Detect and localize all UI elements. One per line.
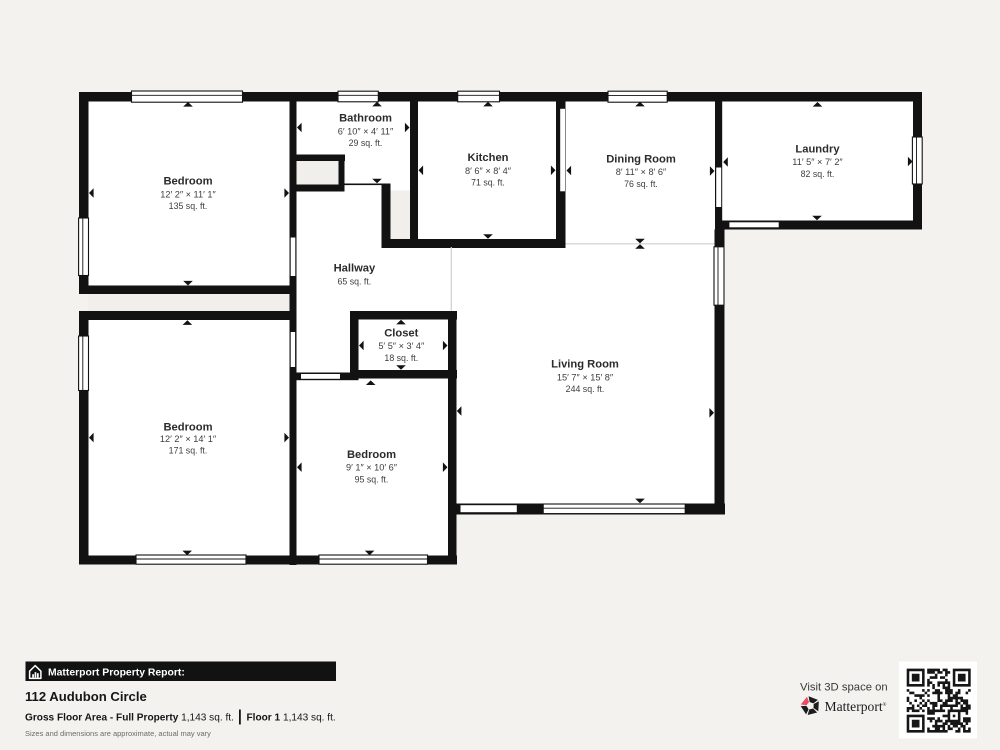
svg-text:11′ 5″ × 7′ 2″: 11′ 5″ × 7′ 2″ xyxy=(792,157,843,167)
svg-text:135 sq. ft.: 135 sq. ft. xyxy=(169,201,208,211)
svg-text:12′ 2″ × 14′ 1″: 12′ 2″ × 14′ 1″ xyxy=(160,434,217,444)
svg-text:Dining Room: Dining Room xyxy=(606,153,676,165)
svg-text:76 sq. ft.: 76 sq. ft. xyxy=(624,179,658,189)
svg-text:12′ 2″ × 11′ 1″: 12′ 2″ × 11′ 1″ xyxy=(160,189,216,199)
svg-text:Closet: Closet xyxy=(384,327,418,339)
svg-text:Bedroom: Bedroom xyxy=(347,449,396,461)
svg-text:Matterport Property Report:: Matterport Property Report: xyxy=(48,668,185,679)
svg-text:171 sq. ft.: 171 sq. ft. xyxy=(169,446,208,456)
svg-text:Kitchen: Kitchen xyxy=(467,152,508,164)
svg-text:15′ 7″ × 15′ 8″: 15′ 7″ × 15′ 8″ xyxy=(557,372,614,382)
svg-text:29 sq. ft.: 29 sq. ft. xyxy=(349,138,383,148)
svg-text:244 sq. ft.: 244 sq. ft. xyxy=(566,384,605,394)
svg-text:112 Audubon Circle: 112 Audubon Circle xyxy=(25,689,147,704)
svg-text:Matterport®: Matterport® xyxy=(825,699,887,714)
svg-text:82 sq. ft.: 82 sq. ft. xyxy=(801,169,835,179)
svg-text:8′ 11″ × 8′ 6″: 8′ 11″ × 8′ 6″ xyxy=(616,167,667,177)
svg-text:Bathroom: Bathroom xyxy=(339,113,392,125)
svg-text:Living Room: Living Room xyxy=(551,359,619,371)
svg-text:Laundry: Laundry xyxy=(795,143,840,155)
svg-text:Bedroom: Bedroom xyxy=(163,176,212,188)
svg-text:9′ 1″ × 10′ 6″: 9′ 1″ × 10′ 6″ xyxy=(346,463,398,473)
svg-text:Sizes and dimensions are appro: Sizes and dimensions are approximate, ac… xyxy=(25,729,211,738)
svg-text:6′ 10″ × 4′ 11″: 6′ 10″ × 4′ 11″ xyxy=(338,126,394,136)
svg-text:5′ 5″ × 3′ 4″: 5′ 5″ × 3′ 4″ xyxy=(378,341,425,351)
svg-text:18 sq. ft.: 18 sq. ft. xyxy=(384,353,418,363)
svg-text:Gross Floor Area - Full Proper: Gross Floor Area - Full Property 1,143 s… xyxy=(25,713,234,724)
svg-text:65 sq. ft.: 65 sq. ft. xyxy=(338,276,372,286)
svg-text:Visit 3D space on: Visit 3D space on xyxy=(800,682,888,694)
svg-text:8′ 6″ × 8′ 4″: 8′ 6″ × 8′ 4″ xyxy=(465,166,512,176)
svg-text:71 sq. ft.: 71 sq. ft. xyxy=(471,178,505,188)
svg-text:95 sq. ft.: 95 sq. ft. xyxy=(355,474,389,484)
svg-text:Bedroom: Bedroom xyxy=(163,421,212,433)
svg-text:Hallway: Hallway xyxy=(334,262,376,274)
svg-text:Floor 1 1,143 sq. ft.: Floor 1 1,143 sq. ft. xyxy=(247,713,336,724)
